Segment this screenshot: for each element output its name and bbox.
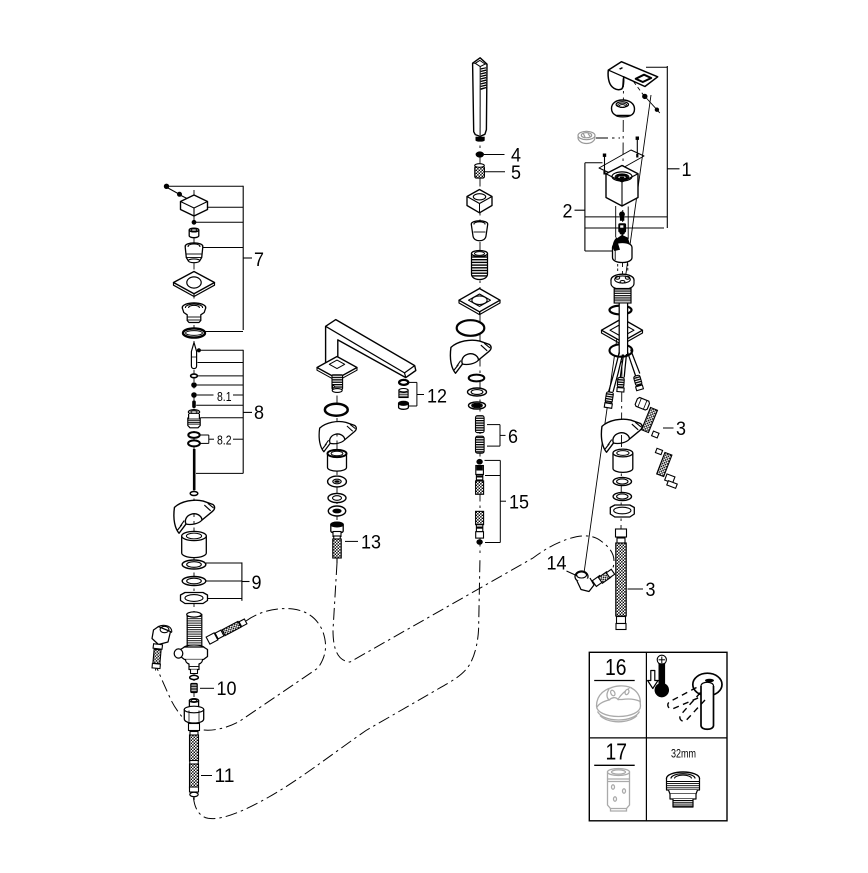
svg-text:15: 15 [509, 493, 529, 514]
svg-text:8.1: 8.1 [217, 389, 232, 404]
svg-text:6: 6 [508, 427, 518, 448]
svg-text:10: 10 [217, 679, 237, 700]
svg-text:1: 1 [682, 160, 692, 181]
svg-text:5: 5 [511, 163, 521, 184]
svg-text:14: 14 [547, 554, 567, 575]
svg-text:13: 13 [361, 533, 381, 554]
svg-text:3: 3 [676, 419, 686, 440]
svg-text:8.2: 8.2 [217, 433, 232, 448]
svg-text:9: 9 [252, 573, 262, 594]
svg-text:8: 8 [254, 403, 264, 424]
svg-text:3: 3 [646, 580, 656, 601]
svg-text:32mm: 32mm [671, 749, 696, 761]
svg-text:17: 17 [606, 739, 628, 765]
svg-text:2: 2 [563, 202, 573, 223]
svg-text:7: 7 [254, 250, 264, 271]
svg-text:11: 11 [215, 766, 235, 787]
svg-text:12: 12 [427, 386, 447, 407]
svg-text:16: 16 [605, 654, 627, 680]
